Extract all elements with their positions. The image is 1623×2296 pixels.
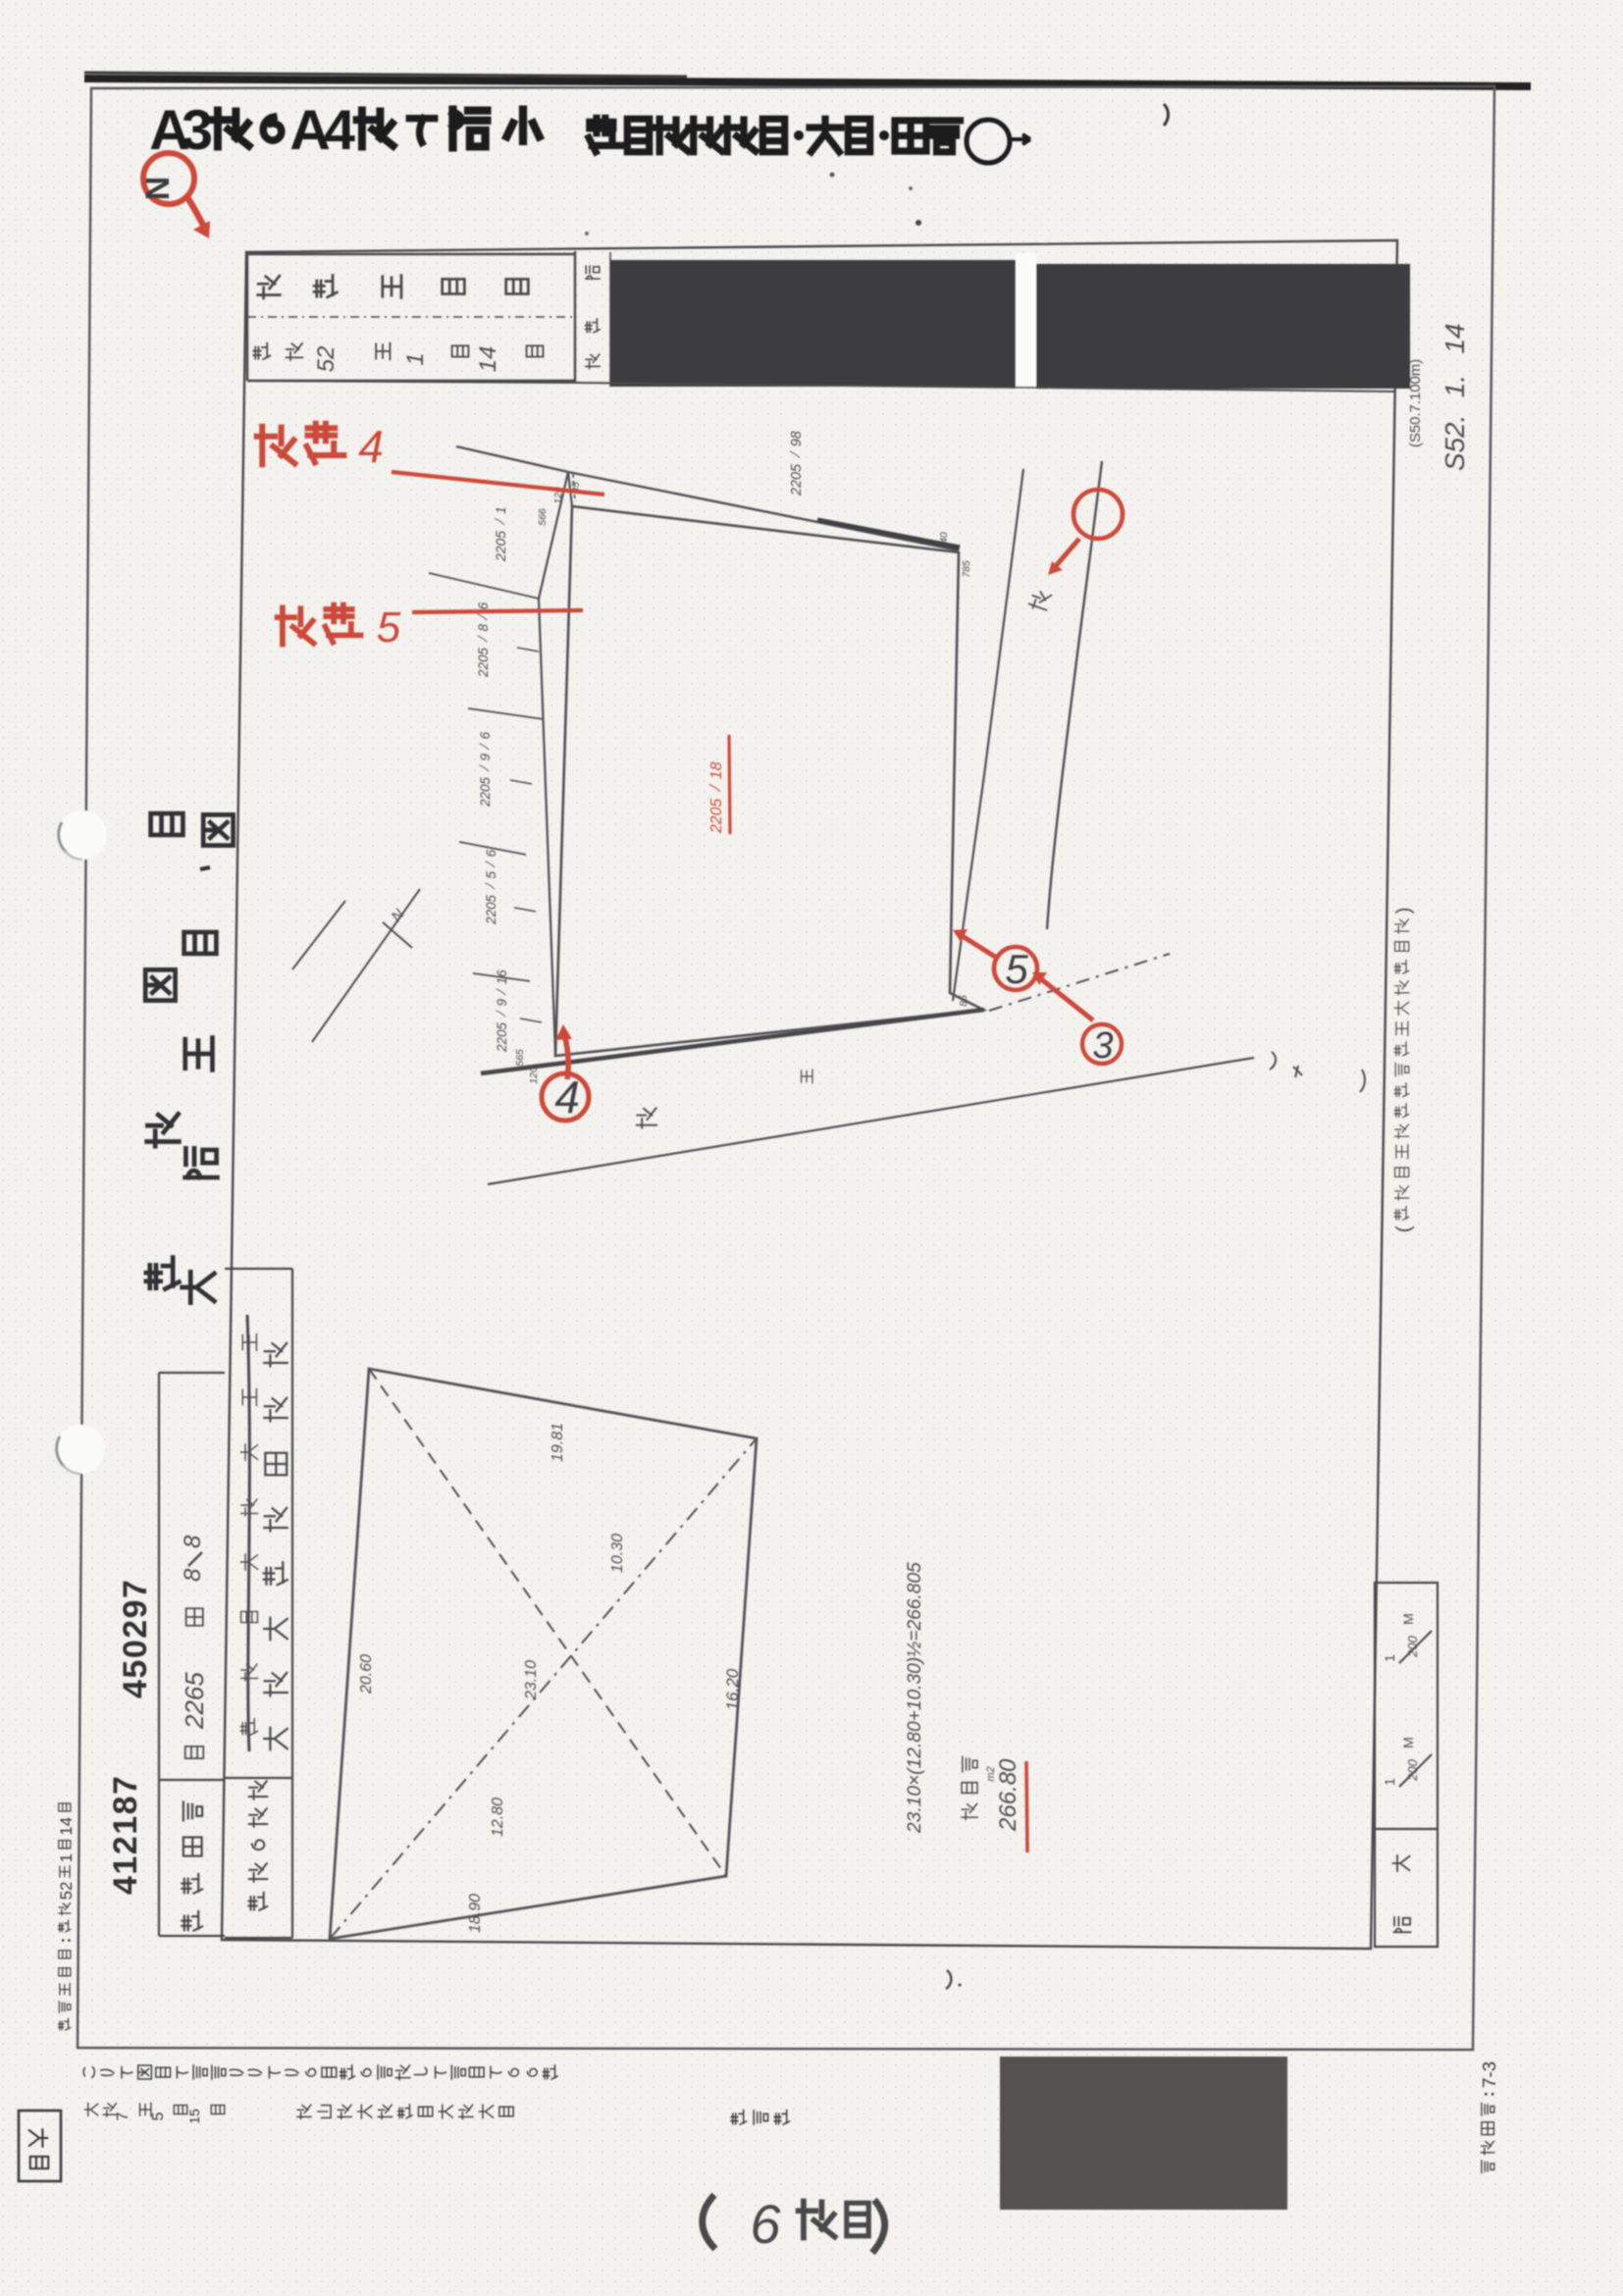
svg-text:52: 52: [313, 346, 340, 373]
svg-text:7-3: 7-3: [1479, 2061, 1499, 2088]
svg-text:4: 4: [358, 421, 384, 472]
svg-text:20.60: 20.60: [358, 1654, 375, 1695]
svg-text:9: 9: [495, 999, 509, 1007]
svg-text:3: 3: [1092, 1025, 1113, 1067]
svg-text:2205: 2205: [495, 1022, 509, 1053]
svg-text:(S50.7.100m): (S50.7.100m): [1408, 359, 1424, 447]
svg-text:8: 8: [476, 624, 491, 632]
svg-text:19.81: 19.81: [550, 1423, 566, 1462]
svg-text:566: 566: [537, 508, 549, 526]
svg-text:16.20: 16.20: [723, 1668, 742, 1710]
svg-text:52: 52: [57, 1882, 76, 1901]
svg-text:785: 785: [961, 560, 972, 578]
svg-text:6: 6: [476, 601, 491, 609]
svg-text:2265: 2265: [180, 1672, 209, 1730]
svg-text:2205: 2205: [493, 531, 508, 562]
svg-text:1: 1: [1382, 1654, 1397, 1662]
svg-text:16: 16: [495, 969, 509, 984]
svg-text:18.90: 18.90: [467, 1894, 484, 1933]
svg-text:6: 6: [478, 731, 493, 739]
svg-text:2205: 2205: [708, 799, 725, 834]
svg-text:14: 14: [1440, 324, 1470, 354]
svg-text:200: 200: [1405, 1758, 1420, 1781]
svg-text:18: 18: [708, 761, 725, 779]
svg-text:5: 5: [150, 2112, 167, 2120]
svg-text:120: 120: [528, 1067, 540, 1084]
svg-text:8: 8: [180, 1535, 206, 1548]
svg-text:23.10×(12.80+10.30)½=266.805: 23.10×(12.80+10.30)½=266.805: [905, 1562, 925, 1834]
svg-text:M: M: [1400, 1737, 1416, 1748]
svg-text:15: 15: [186, 2109, 202, 2124]
svg-text:8: 8: [180, 1568, 206, 1582]
svg-text:2205: 2205: [484, 895, 498, 925]
svg-text:1: 1: [493, 506, 508, 514]
svg-text:3: 3: [182, 99, 213, 162]
svg-text:N: N: [139, 177, 177, 201]
svg-text:450297: 450297: [117, 1579, 154, 1698]
svg-text:14: 14: [475, 346, 501, 373]
svg-text:1: 1: [1382, 1778, 1397, 1786]
svg-text:14: 14: [57, 1817, 76, 1836]
svg-text:6: 6: [750, 2193, 781, 2255]
svg-text:10.30: 10.30: [609, 1534, 626, 1573]
svg-text:1.: 1.: [1440, 375, 1470, 397]
svg-text:2205: 2205: [476, 648, 491, 678]
svg-text:): ): [1392, 908, 1415, 914]
svg-text:23.10: 23.10: [523, 1660, 540, 1700]
svg-text:9: 9: [478, 754, 493, 761]
svg-text:5: 5: [1005, 946, 1028, 992]
svg-text:M: M: [1400, 1613, 1416, 1625]
svg-text:7: 7: [115, 2112, 131, 2120]
svg-text:(: (: [1392, 1226, 1415, 1232]
svg-text:200: 200: [1405, 1635, 1420, 1657]
svg-text:5: 5: [377, 603, 401, 652]
svg-text:5: 5: [484, 871, 498, 879]
svg-text:98: 98: [789, 431, 805, 446]
svg-text:565: 565: [514, 1049, 526, 1067]
svg-text:266.80: 266.80: [995, 1758, 1021, 1832]
svg-text:m2: m2: [985, 1766, 997, 1781]
svg-text:1: 1: [402, 352, 429, 365]
svg-text:2205: 2205: [478, 777, 493, 808]
svg-text:2205: 2205: [789, 463, 805, 496]
svg-text:12.80: 12.80: [490, 1798, 506, 1837]
svg-text:240: 240: [938, 532, 950, 550]
svg-text:412187: 412187: [107, 1775, 144, 1895]
svg-text:6: 6: [484, 849, 498, 857]
svg-text:1: 1: [57, 1853, 76, 1862]
svg-text:S52.: S52.: [1440, 415, 1470, 471]
svg-text:85: 85: [958, 995, 969, 1007]
svg-text:4: 4: [324, 99, 355, 162]
